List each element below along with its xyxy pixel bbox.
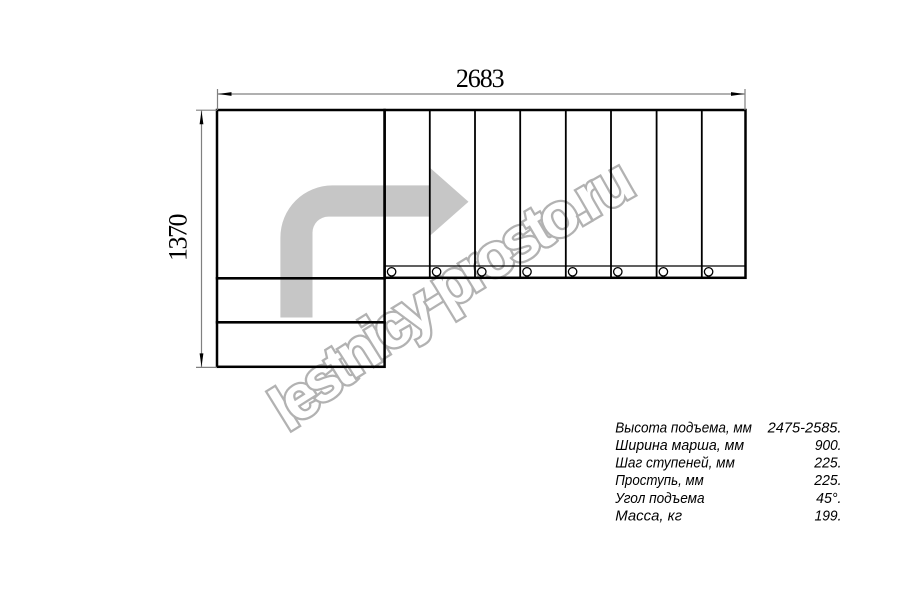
- svg-text:Ширина марша, мм: Ширина марша, мм: [615, 438, 744, 454]
- svg-text:199.: 199.: [815, 508, 842, 524]
- svg-text:Высота подъема, мм: Высота подъема, мм: [615, 420, 752, 436]
- svg-text:2475-2585.: 2475-2585.: [767, 420, 842, 436]
- svg-text:Масса, кг: Масса, кг: [615, 508, 682, 524]
- svg-text:Угол подъема: Угол подъема: [614, 491, 704, 507]
- svg-text:Проступь, мм: Проступь, мм: [615, 473, 703, 489]
- svg-text:1370: 1370: [163, 214, 192, 262]
- svg-text:Шаг ступеней, мм: Шаг ступеней, мм: [615, 456, 735, 472]
- svg-text:900.: 900.: [815, 438, 842, 454]
- svg-text:225.: 225.: [813, 473, 841, 489]
- svg-text:2683: 2683: [456, 64, 504, 93]
- svg-text:225.: 225.: [813, 456, 841, 472]
- svg-text:45°.: 45°.: [816, 491, 841, 507]
